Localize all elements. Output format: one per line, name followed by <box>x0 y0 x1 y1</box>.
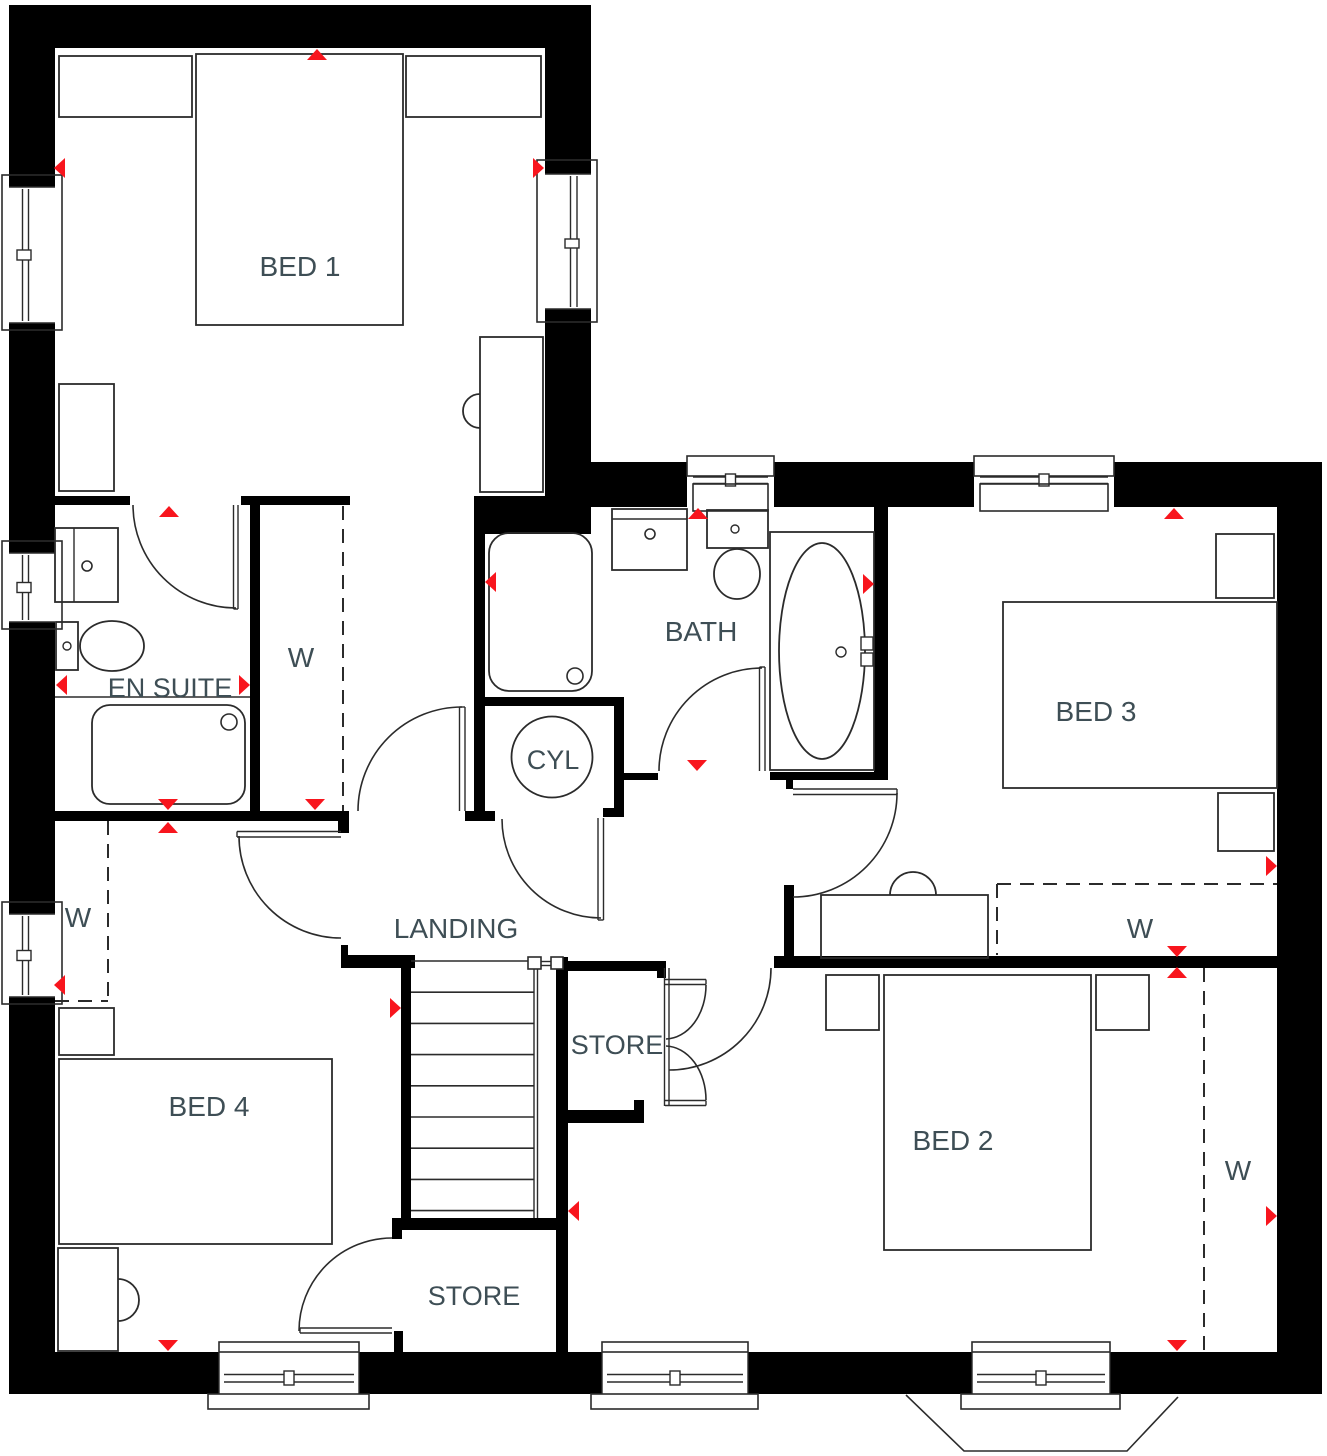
svg-text:CYL: CYL <box>527 745 580 775</box>
svg-text:BED 3: BED 3 <box>1056 696 1137 727</box>
svg-text:W: W <box>65 902 92 933</box>
svg-text:BED 2: BED 2 <box>913 1125 994 1156</box>
svg-text:STORE: STORE <box>428 1281 521 1311</box>
svg-text:STORE: STORE <box>571 1030 664 1060</box>
svg-text:BATH: BATH <box>665 616 738 647</box>
svg-text:EN SUITE: EN SUITE <box>108 673 233 703</box>
svg-text:W: W <box>1225 1155 1252 1186</box>
svg-text:BED 1: BED 1 <box>260 251 341 282</box>
svg-text:LANDING: LANDING <box>394 913 518 944</box>
svg-text:BED 4: BED 4 <box>169 1091 250 1122</box>
svg-text:W: W <box>288 642 315 673</box>
svg-text:W: W <box>1127 913 1154 944</box>
